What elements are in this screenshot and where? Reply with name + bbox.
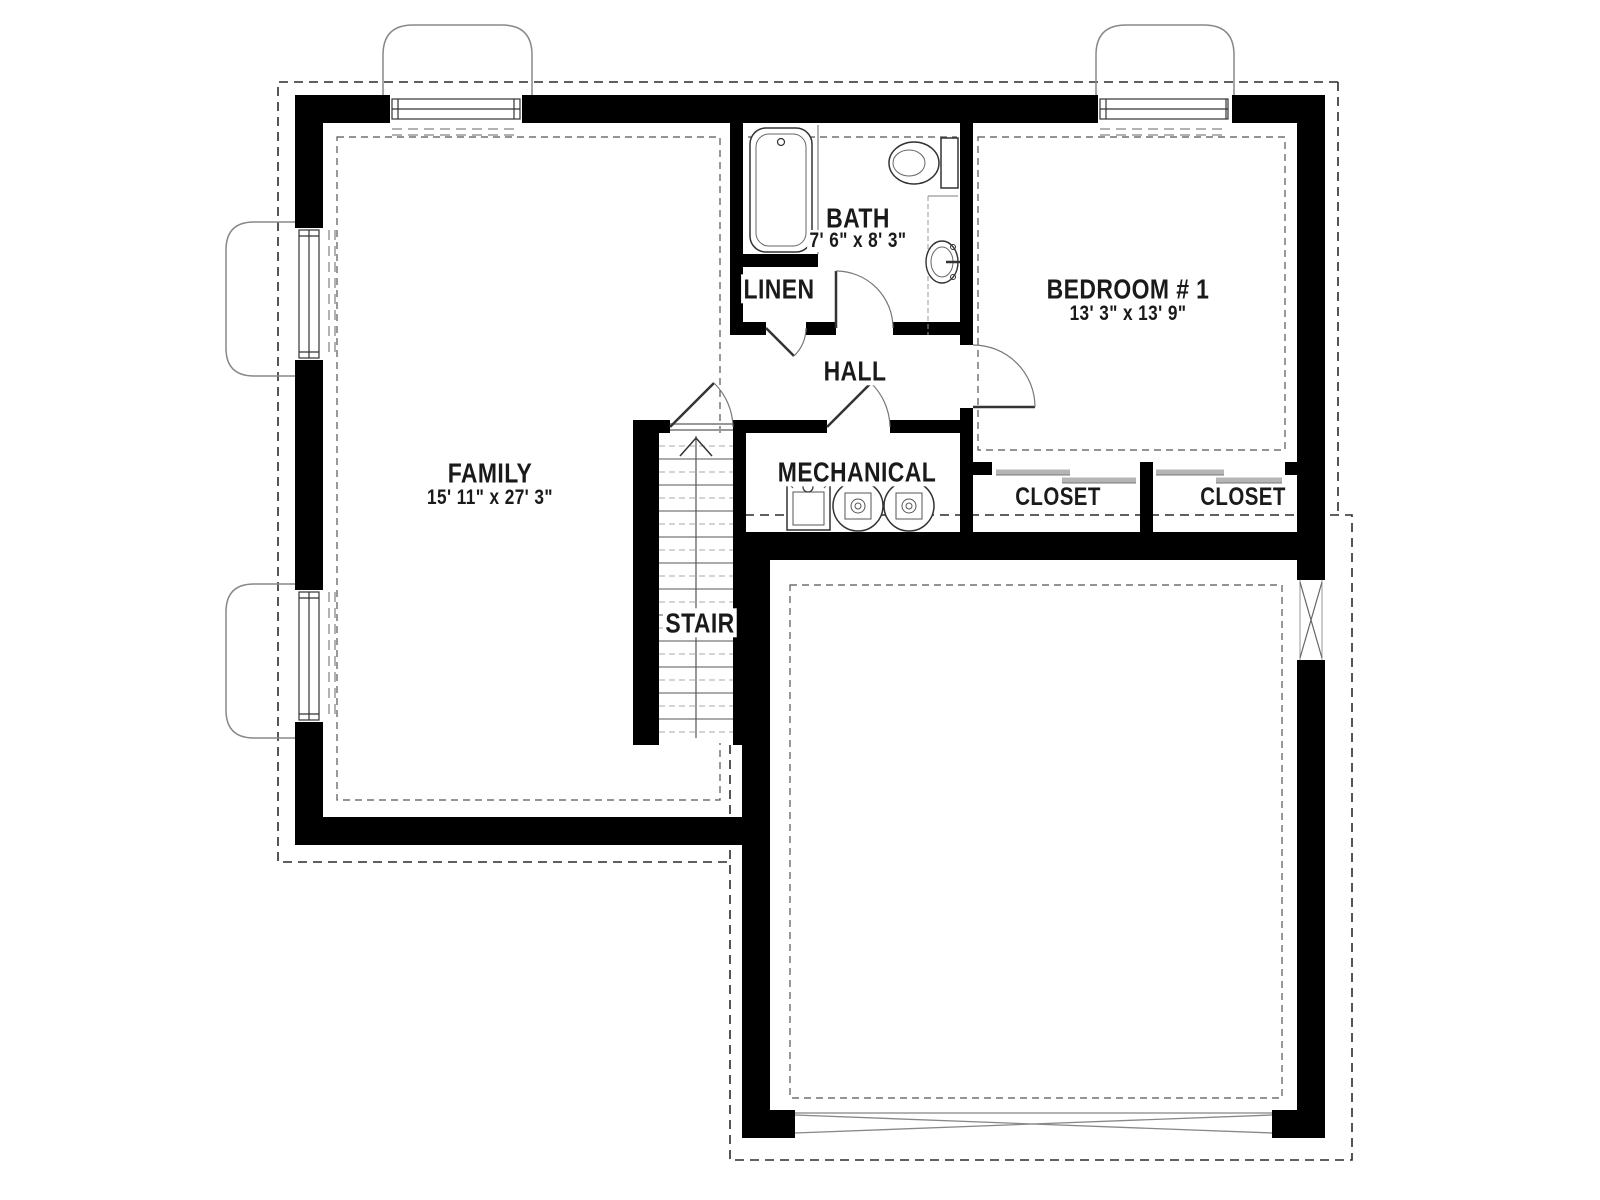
wall-bath-bedroom — [960, 123, 973, 335]
closet-right-slider — [1156, 472, 1282, 483]
window-icon — [392, 99, 520, 119]
window-well — [226, 222, 300, 376]
sink-icon — [926, 241, 960, 283]
wall-right — [1297, 660, 1325, 1138]
wall-closet-top — [1285, 462, 1297, 475]
floor-plan: FAMILY 15' 11" x 27' 3" BATH 7' 6" x 8' … — [0, 0, 1600, 1200]
garage-openings — [795, 580, 1325, 1138]
stair-threshold — [670, 424, 733, 430]
wall-left — [295, 95, 323, 228]
room-label-linen: LINEN — [741, 274, 817, 303]
wall-garage-left — [742, 532, 770, 1138]
closet-left-slider — [996, 472, 1136, 483]
room-label-closet-left: CLOSET — [1013, 484, 1104, 510]
wall-hall-bedroom — [960, 335, 973, 345]
wall-garage-bottom — [1272, 1110, 1325, 1138]
doors — [670, 271, 1035, 427]
stair-assembly — [659, 424, 733, 743]
garage-door — [795, 1110, 1272, 1138]
room-label-stair: STAIR — [663, 608, 737, 637]
wall-hall-bottom — [733, 420, 827, 433]
room-label-bedroom1: BEDROOM # 1 — [1044, 274, 1212, 303]
bedroom-door — [973, 345, 1035, 407]
room-label-hall: HALL — [821, 356, 889, 385]
utility-sink-icon — [787, 482, 830, 530]
window-icon — [299, 230, 319, 358]
window-well — [226, 584, 300, 738]
wall-stair-right — [733, 420, 746, 745]
wall-linen-bottom — [730, 322, 766, 335]
bathtub-icon — [750, 128, 812, 252]
wall-closet-divider — [1140, 462, 1153, 532]
stair-door — [670, 383, 733, 427]
wall-garage-top — [742, 532, 1325, 560]
bath-door — [836, 271, 893, 328]
wall-family-bottom — [295, 817, 745, 845]
window-well — [383, 25, 532, 103]
room-label-family: FAMILY — [445, 458, 534, 487]
wall-linen-bottom — [806, 322, 836, 335]
wall-hall-bottom — [890, 420, 973, 433]
room-dims-family: 15' 11" x 27' 3" — [425, 487, 556, 509]
wall-bath-linen — [730, 254, 818, 267]
room-label-mechanical: MECHANICAL — [775, 457, 938, 486]
closet-sliding-doors — [996, 472, 1282, 483]
wall-top — [522, 95, 1098, 123]
room-dims-bedroom1: 13' 3" x 13' 9" — [1067, 303, 1189, 325]
wall-left — [295, 360, 323, 590]
wall-garage-bottom — [742, 1110, 795, 1138]
toilet-icon — [889, 138, 958, 188]
mechanical-door — [827, 383, 890, 427]
room-label-closet-right: CLOSET — [1198, 484, 1289, 510]
floor-plan-drawing — [0, 0, 1600, 1200]
wall-right — [1297, 95, 1325, 580]
room-dims-bath: 7' 6" x 8' 3" — [807, 230, 909, 252]
window-well — [1096, 25, 1234, 103]
wall-stair-left — [633, 420, 659, 745]
wall-closet-top — [973, 462, 992, 475]
garage-window — [1297, 580, 1325, 660]
window-icon — [1100, 99, 1228, 119]
window-icon — [299, 592, 319, 720]
garage-floor-dashed — [790, 585, 1282, 1098]
linen-door — [766, 328, 806, 356]
